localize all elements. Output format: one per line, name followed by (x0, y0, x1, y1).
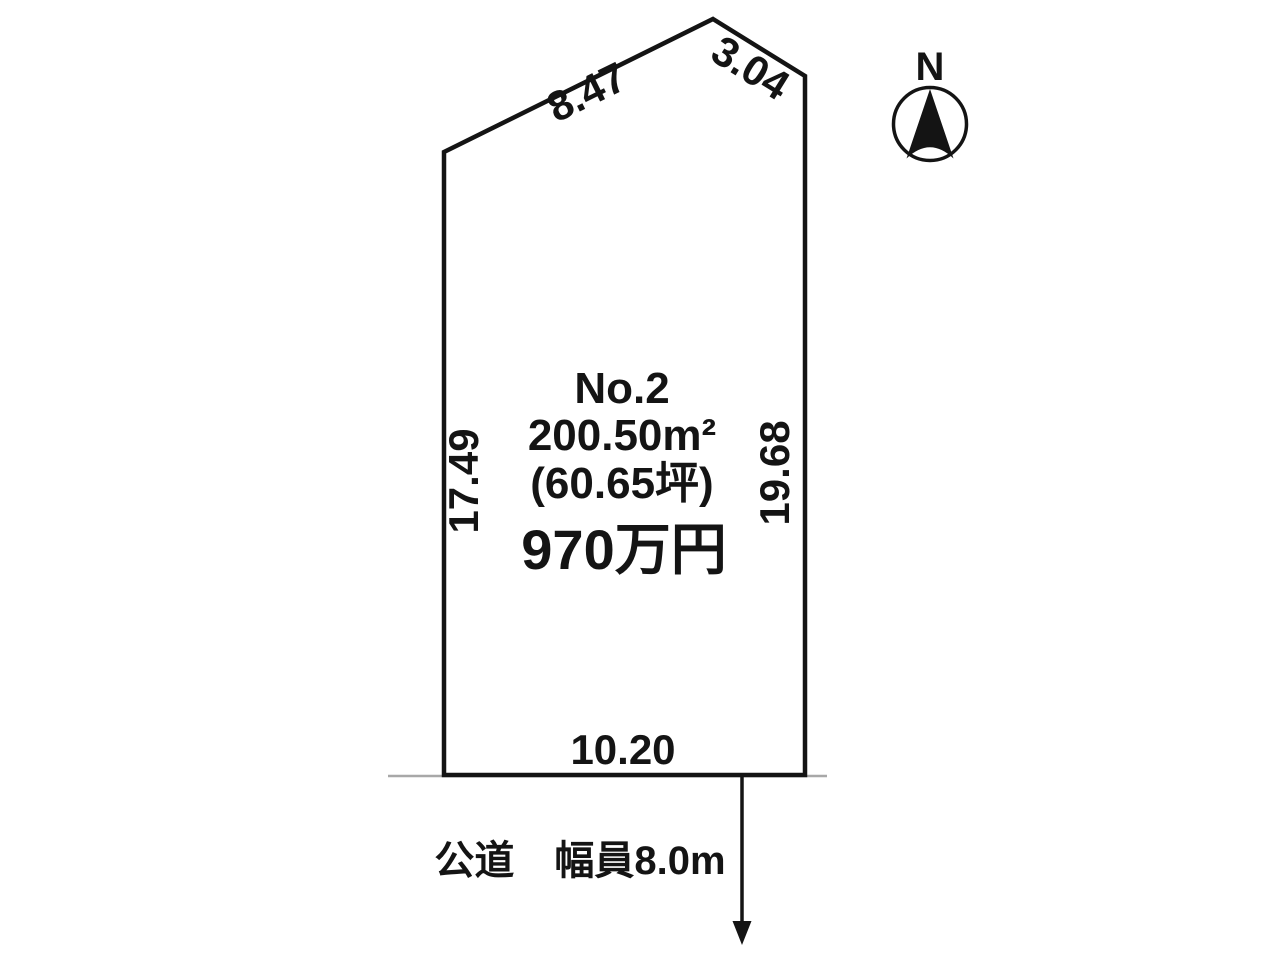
dimension-left-edge: 17.49 (440, 428, 487, 533)
road-label: 公道 幅員8.0m (434, 839, 725, 883)
compass-north-label: N (916, 45, 945, 89)
road-arrow-head (733, 921, 752, 945)
plot-area-m2: 200.50m² (528, 411, 716, 460)
plot-number-label: No.2 (574, 364, 669, 413)
diagram-svg: N 8.47 3.04 17.49 19.68 10.20 No.2 200.5… (0, 0, 1280, 959)
land-plot-diagram: N 8.47 3.04 17.49 19.68 10.20 No.2 200.5… (0, 0, 1280, 959)
dimension-right-edge: 19.68 (751, 420, 798, 525)
plot-area-tsubo: (60.65坪) (530, 459, 713, 508)
plot-price: 970万円 (521, 518, 726, 581)
dimension-bottom-edge: 10.20 (570, 726, 675, 773)
